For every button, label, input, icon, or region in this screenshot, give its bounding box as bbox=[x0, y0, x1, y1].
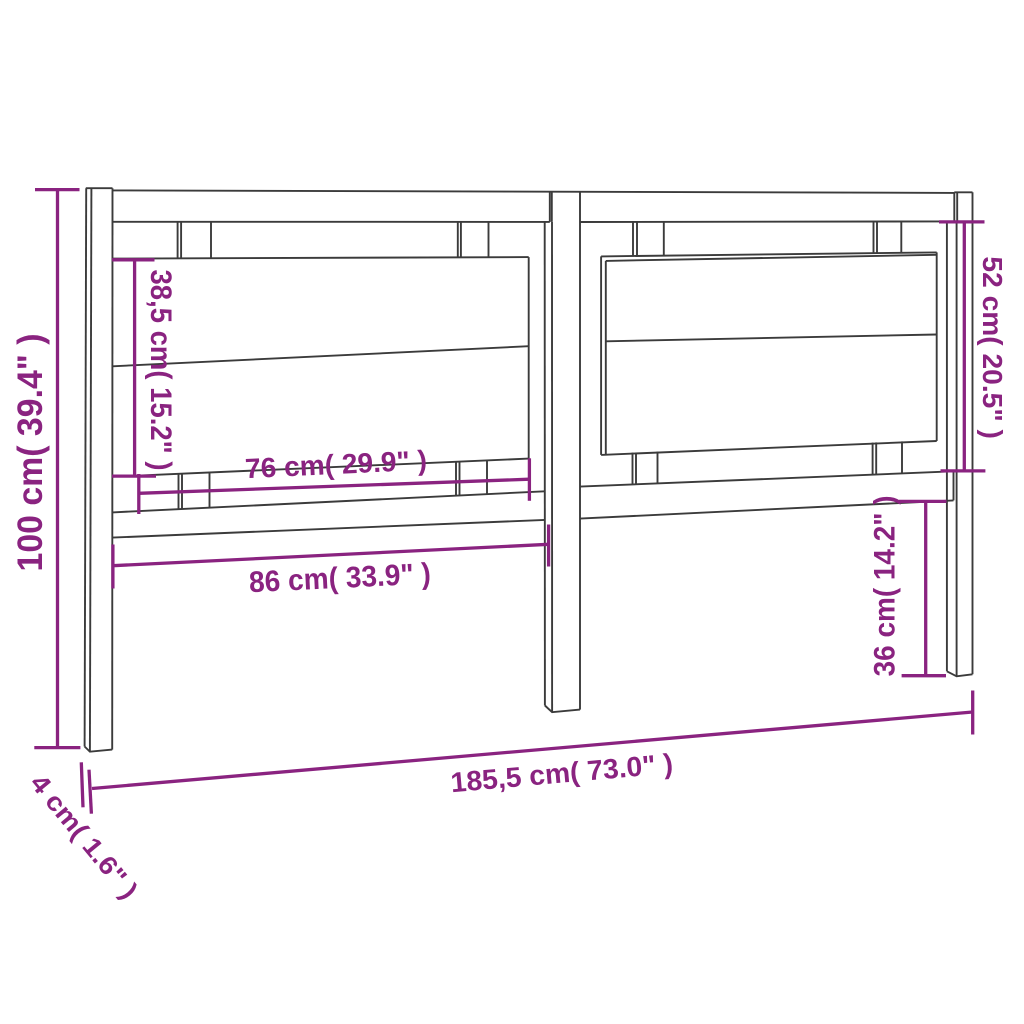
svg-text:36 cm( 14.2" ): 36 cm( 14.2" ) bbox=[868, 495, 901, 676]
svg-text:52 cm( 20.5" ): 52 cm( 20.5" ) bbox=[977, 256, 1008, 439]
svg-text:100 cm( 39.4" ): 100 cm( 39.4" ) bbox=[11, 334, 50, 572]
svg-text:38,5 cm( 15.2" ): 38,5 cm( 15.2" ) bbox=[144, 270, 177, 471]
